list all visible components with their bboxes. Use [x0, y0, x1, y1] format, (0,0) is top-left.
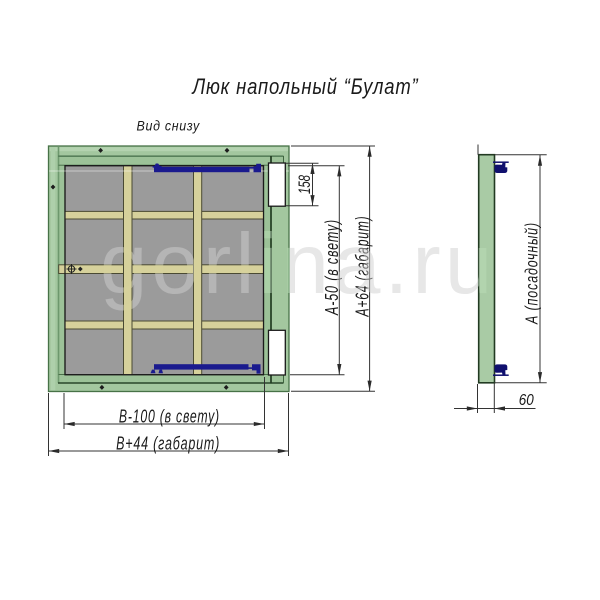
svg-text:Люк напольный “Булат”: Люк напольный “Булат” [191, 74, 419, 99]
svg-text:158: 158 [295, 175, 314, 194]
svg-text:А (посадочный): А (посадочный) [522, 222, 542, 325]
svg-text:60: 60 [519, 392, 534, 409]
svg-text:В-100 (в свету): В-100 (в свету) [119, 405, 220, 426]
svg-text:В+44 (габарит): В+44 (габарит) [116, 433, 220, 454]
svg-text:Вид снизу: Вид снизу [136, 118, 200, 134]
